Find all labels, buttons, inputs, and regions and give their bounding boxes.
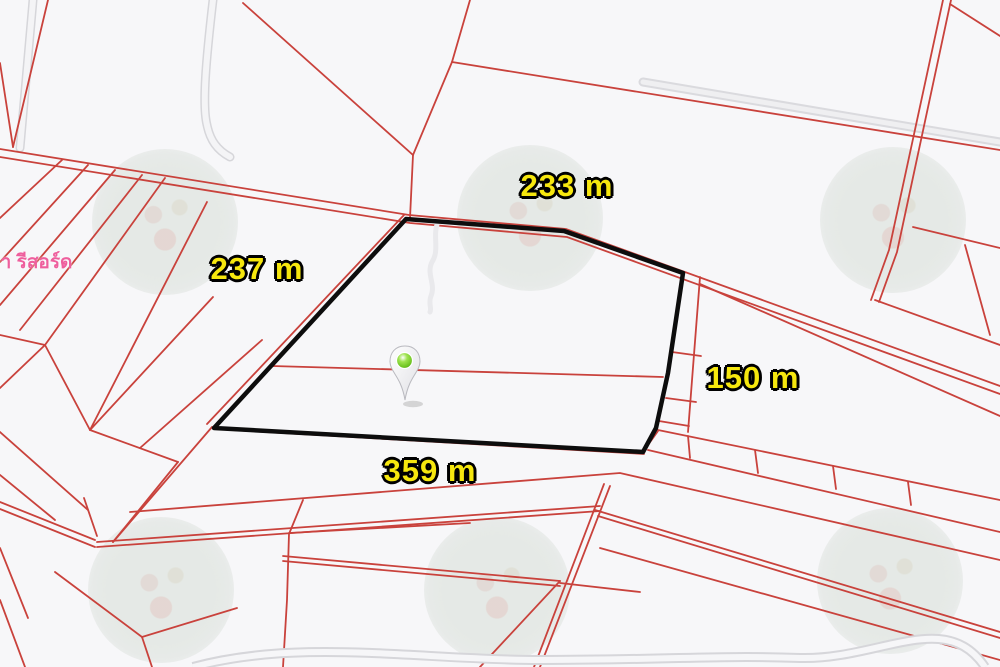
dimension-label-bottom: 359 m — [384, 453, 477, 489]
map-canvas[interactable]: 233 m 237 m 150 m 359 m วา รีสอร์ด — [0, 0, 1000, 667]
map-pin[interactable] — [383, 342, 427, 412]
pin-shadow — [403, 401, 423, 407]
dimension-label-right: 150 m — [707, 360, 800, 396]
parcel-lines-layer — [0, 0, 1000, 667]
dimension-label-left: 237 m — [211, 251, 304, 287]
place-name-label: วา รีสอร์ด — [0, 247, 72, 277]
dimension-label-top: 233 m — [521, 168, 614, 204]
pin-dot — [397, 353, 413, 369]
